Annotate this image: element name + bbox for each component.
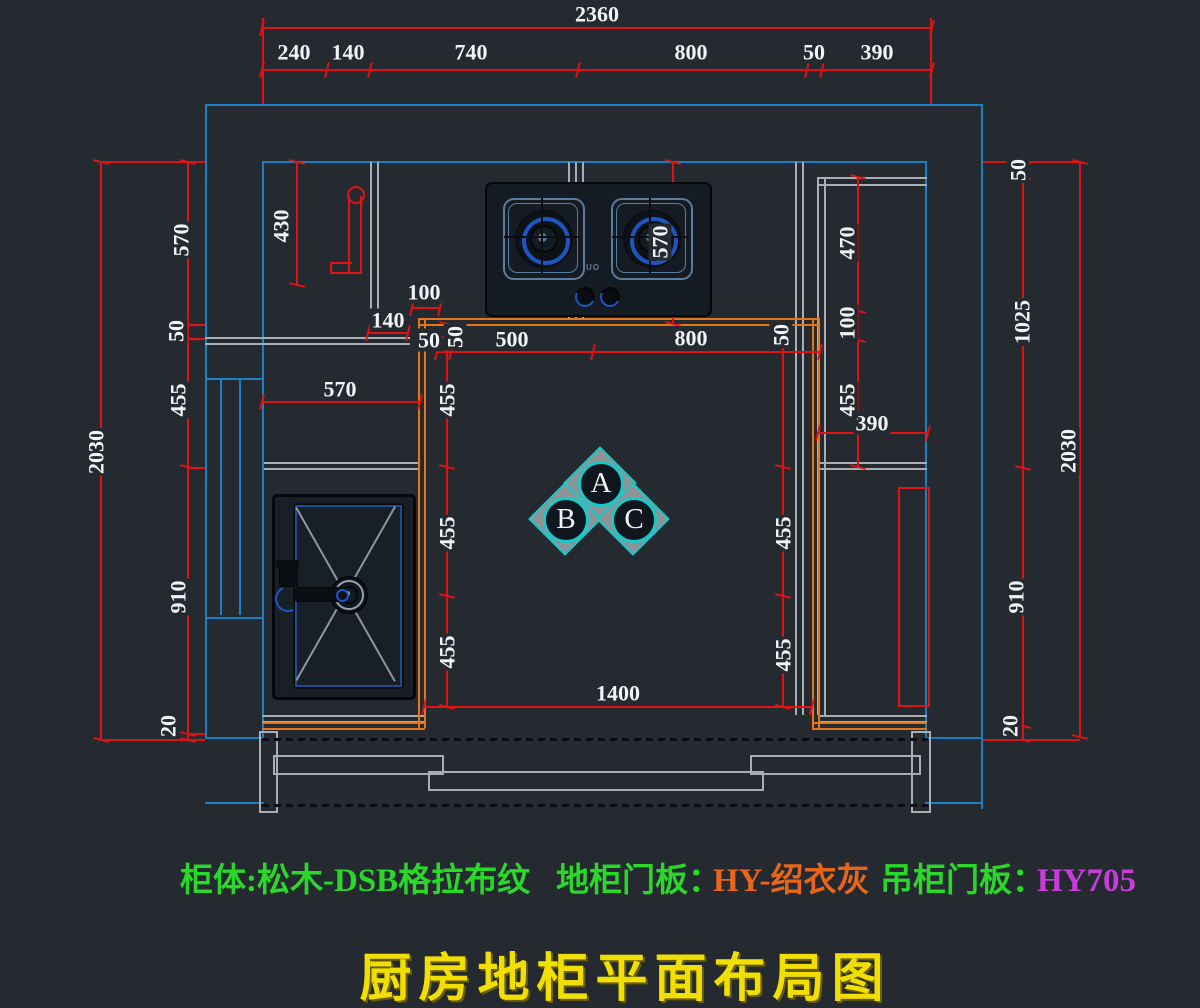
spec-text-segment: HY-绍衣灰	[713, 862, 869, 902]
drawing-title: 厨房地柜平面布局图	[359, 936, 890, 1008]
spec-text-segment: 地柜门板：	[556, 862, 721, 902]
material-spec-line: 柜体:松木-DSB格拉布纹地柜门板：HY-绍衣灰吊柜门板：HY705	[0, 0, 1200, 1008]
cad-kitchen-plan: UO A B C 2360240140740800503901001405050…	[0, 0, 1200, 1008]
spec-text-segment: HY705	[1037, 862, 1136, 902]
spec-text-segment: 吊柜门板：	[880, 862, 1045, 902]
spec-text-segment: 柜体:松木-DSB格拉布纹	[180, 862, 530, 902]
